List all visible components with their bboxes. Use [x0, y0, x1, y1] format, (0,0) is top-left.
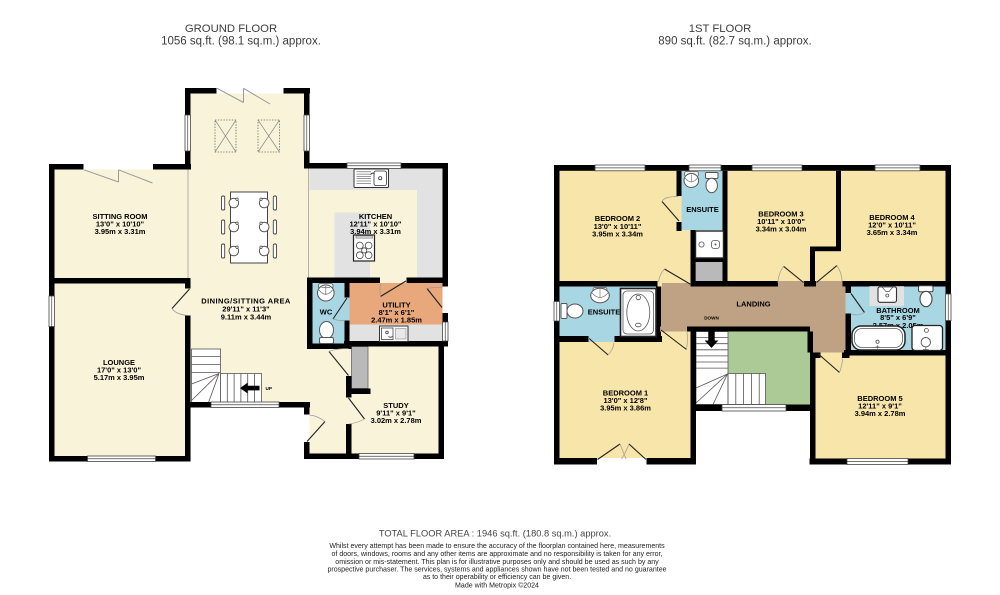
svg-text:1ST FLOOR: 1ST FLOOR: [689, 23, 752, 35]
svg-text:as to their operability or eff: as to their operability or efficiency ca…: [423, 574, 571, 581]
svg-text:5.17m x 3.95m: 5.17m x 3.95m: [94, 373, 145, 382]
svg-text:ENSUITE: ENSUITE: [686, 205, 719, 214]
svg-text:2.47m x 1.85m: 2.47m x 1.85m: [371, 316, 422, 325]
svg-text:9.11m x 3.44m: 9.11m x 3.44m: [221, 313, 272, 322]
svg-text:3.95m x 3.86m: 3.95m x 3.86m: [600, 404, 651, 413]
svg-text:3.94m x 3.31m: 3.94m x 3.31m: [350, 227, 401, 236]
svg-text:3.95m x 3.31m: 3.95m x 3.31m: [95, 227, 146, 236]
svg-text:1056 sq.ft. (98.1 sq.m.) appro: 1056 sq.ft. (98.1 sq.m.) approx.: [161, 36, 321, 48]
svg-text:3.94m x 2.78m: 3.94m x 2.78m: [855, 409, 906, 418]
svg-text:LANDING: LANDING: [736, 300, 770, 309]
svg-text:of doors, windows, rooms and a: of doors, windows, rooms and any other i…: [332, 551, 663, 558]
svg-text:UP: UP: [266, 386, 272, 391]
svg-text:ENSUITE: ENSUITE: [588, 308, 621, 317]
svg-text:3.02m x 2.78m: 3.02m x 2.78m: [371, 416, 422, 425]
svg-text:Made with Metropix ©2024: Made with Metropix ©2024: [455, 582, 539, 590]
svg-text:Whilst every attempt has been: Whilst every attempt has been made to en…: [329, 543, 665, 550]
svg-text:3.65m x 3.34m: 3.65m x 3.34m: [867, 228, 918, 237]
svg-text:omission or mis-statement. Thi: omission or mis-statement. This plan is …: [335, 559, 659, 566]
svg-text:GROUND FLOOR: GROUND FLOOR: [185, 23, 277, 35]
svg-text:prospective purchaser. The ser: prospective purchaser. The services, sys…: [327, 567, 666, 574]
svg-text:TOTAL FLOOR AREA : 1946 sq.ft.: TOTAL FLOOR AREA : 1946 sq.ft. (180.8 sq…: [379, 529, 611, 539]
svg-text:DOWN: DOWN: [704, 316, 719, 321]
svg-text:890 sq.ft. (82.7 sq.m.) approx: 890 sq.ft. (82.7 sq.m.) approx.: [658, 36, 811, 48]
svg-text:3.95m x 3.34m: 3.95m x 3.34m: [592, 229, 643, 238]
svg-text:WC: WC: [320, 308, 333, 317]
svg-text:3.34m x 3.04m: 3.34m x 3.04m: [756, 225, 807, 234]
